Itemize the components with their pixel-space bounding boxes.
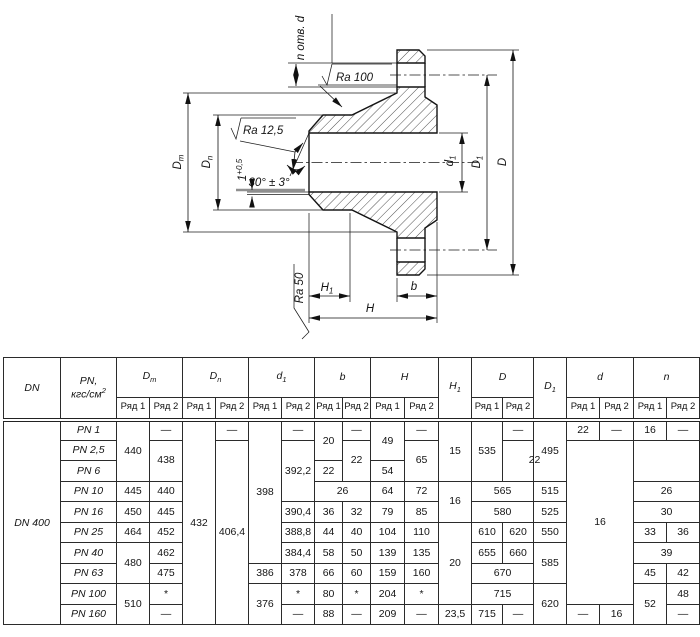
- spec-value-cell: 79: [371, 502, 405, 523]
- spec-value-cell: 159: [371, 563, 405, 584]
- spec-value-cell: 20: [439, 522, 472, 604]
- spec-value-cell: 49: [371, 420, 405, 461]
- spec-value-cell: 64: [371, 481, 405, 502]
- spec-value-cell: —: [282, 604, 315, 625]
- spec-value-cell: 48: [667, 584, 700, 605]
- pn-row-label: PN 1: [61, 420, 117, 441]
- spec-value-cell: 104: [371, 522, 405, 543]
- spec-value-cell: 452: [150, 522, 183, 543]
- page: n отв. d Ra 100 Ra 12,5 Ra 50 30° ± 3° 1…: [0, 0, 700, 637]
- pn-row-label: PN 10: [61, 481, 117, 502]
- spec-value-cell: 464: [117, 522, 150, 543]
- spec-value-cell: 620: [503, 522, 534, 543]
- column-header: PN,кгс/см2: [61, 358, 117, 420]
- spec-value-cell: 16: [634, 420, 667, 441]
- spec-value-cell: 450: [117, 502, 150, 523]
- spec-value-cell: 388,8: [282, 522, 315, 543]
- spec-value-cell: 26: [634, 481, 700, 502]
- spec-value-cell: 52: [634, 584, 667, 625]
- dm-dim-label: Dm: [172, 154, 186, 169]
- spec-value-cell: 392,2: [282, 440, 315, 502]
- spec-value-cell: 45: [634, 563, 667, 584]
- spec-value-cell: 585: [534, 543, 567, 584]
- spec-value-cell: 445: [117, 481, 150, 502]
- spec-value-cell: —: [667, 604, 700, 625]
- table-body: DN 400PN 1440—432—398—20—49—15535—49522—…: [4, 420, 700, 625]
- series-header: Ряд 2: [405, 398, 439, 420]
- series-header: Ряд 1: [634, 398, 667, 420]
- spec-value-cell: 40: [343, 522, 371, 543]
- dimension-lines: [188, 50, 513, 318]
- spec-value-cell: 480: [117, 543, 150, 584]
- column-header: d1: [249, 358, 315, 398]
- series-header: Ряд 2: [343, 398, 371, 420]
- d1-dim-label: d1: [444, 156, 458, 167]
- spec-value-cell: 139: [371, 543, 405, 564]
- spec-value-cell: 22: [343, 440, 371, 481]
- spec-value-cell: 60: [343, 563, 371, 584]
- series-header: Ряд 1: [371, 398, 405, 420]
- ra100-label: Ra 100: [336, 72, 374, 84]
- spec-value-cell: 440: [150, 481, 183, 502]
- dn-dim-label: Dn: [201, 155, 215, 168]
- spec-value-cell: 384,4: [282, 543, 315, 564]
- spec-value-cell: 376: [249, 584, 282, 625]
- spec-value-cell: 386: [249, 563, 282, 584]
- spec-value-cell: —: [503, 604, 534, 625]
- spec-value-cell: 550: [534, 522, 567, 543]
- column-header: Dm: [117, 358, 183, 398]
- spec-value-cell: 515: [534, 481, 567, 502]
- column-header: D: [472, 358, 534, 398]
- spec-value-cell: 23,5: [439, 604, 472, 625]
- b-dim-label: b: [411, 281, 418, 293]
- spec-value-cell: *: [405, 584, 439, 605]
- pn-row-label: PN 6: [61, 461, 117, 482]
- series-header: Ряд 1: [183, 398, 216, 420]
- spec-value-cell: 36: [315, 502, 343, 523]
- spec-value-cell: 54: [371, 461, 405, 482]
- flange-spec-table: DNPN,кгс/см2DmDnd1bHH1DD1dn Ряд 1Ряд 2Ря…: [3, 357, 700, 625]
- spec-value-cell: 22: [567, 420, 600, 441]
- pn-row-label: PN 160: [61, 604, 117, 625]
- spec-value-cell: —: [600, 420, 634, 441]
- series-header: Ряд 2: [150, 398, 183, 420]
- spec-value-cell: 110: [405, 522, 439, 543]
- pn-row-label: PN 2,5: [61, 440, 117, 461]
- column-header: H1: [439, 358, 472, 420]
- flange-spec-table-wrap: DNPN,кгс/см2DmDnd1bHH1DD1dn Ряд 1Ряд 2Ря…: [3, 357, 697, 625]
- D1-dim-label: D1: [471, 156, 485, 169]
- spec-value-cell: 33: [634, 522, 667, 543]
- spec-value-cell: —: [503, 420, 534, 441]
- spec-value-cell: 88: [315, 604, 343, 625]
- spec-value-cell: 72: [405, 481, 439, 502]
- spec-value-cell: 438: [150, 440, 183, 481]
- series-header: Ряд 1: [315, 398, 343, 420]
- n-holes-label: n отв. d: [295, 15, 307, 60]
- table-row: PN 160——88—209—23,5715——16—: [4, 604, 700, 625]
- spec-value-cell: —: [343, 604, 371, 625]
- spec-value-cell: 398: [249, 420, 282, 564]
- spec-value-cell: 378: [282, 563, 315, 584]
- spec-value-cell: 510: [117, 584, 150, 625]
- spec-value-cell: 565: [472, 481, 534, 502]
- spec-value-cell: 440: [117, 420, 150, 482]
- spec-value-cell: *: [343, 584, 371, 605]
- spec-value-cell: 660: [503, 543, 534, 564]
- series-header: Ряд 2: [282, 398, 315, 420]
- spec-value-cell: 80: [315, 584, 343, 605]
- dn-label: DN 400: [4, 420, 61, 625]
- spec-value-cell: 22: [315, 461, 343, 482]
- spec-value-cell: 390,4: [282, 502, 315, 523]
- spec-value-cell: 610: [472, 522, 503, 543]
- column-header: d: [567, 358, 634, 398]
- spec-value-cell: 406,4: [216, 440, 249, 625]
- spec-value-cell: 475: [150, 563, 183, 584]
- spec-value-cell: 30: [634, 502, 700, 523]
- column-header: D1: [534, 358, 567, 420]
- spec-value-cell: 715: [472, 584, 534, 605]
- spec-value-cell: 204: [371, 584, 405, 605]
- spec-value-cell: —: [567, 604, 600, 625]
- ra50-label: Ra 50: [294, 272, 306, 303]
- extension-lines: [183, 14, 519, 339]
- spec-value-cell: 20: [315, 420, 343, 461]
- spec-value-cell: 39: [634, 543, 700, 564]
- pn-row-label: PN 100: [61, 584, 117, 605]
- spec-value-cell: *: [150, 584, 183, 605]
- spec-value-cell: 16: [439, 481, 472, 522]
- spec-value-cell: 620: [534, 584, 567, 625]
- column-header: b: [315, 358, 371, 398]
- spec-value-cell: 66: [315, 563, 343, 584]
- table-header: DNPN,кгс/см2DmDnd1bHH1DD1dn Ряд 1Ряд 2Ря…: [4, 358, 700, 420]
- spec-value-cell: 160: [405, 563, 439, 584]
- spec-value-cell: 16: [567, 440, 634, 604]
- series-header: Ряд 1: [567, 398, 600, 420]
- spec-value-cell: 462: [150, 543, 183, 564]
- table-row: PN 2,5438406,4392,222652216: [4, 440, 700, 461]
- spec-value-cell: —: [282, 420, 315, 441]
- spec-value-cell: 65: [405, 440, 439, 481]
- spec-value-cell: 580: [472, 502, 534, 523]
- series-header: Ряд 2: [600, 398, 634, 420]
- bevel-angle-label: 30° ± 3°: [248, 177, 289, 189]
- series-header: Ряд 2: [503, 398, 534, 420]
- column-header: Dn: [183, 358, 249, 398]
- series-header: Ряд 1: [472, 398, 503, 420]
- spec-value-cell: —: [405, 420, 439, 441]
- spec-value-cell: 15: [439, 420, 472, 482]
- table-row: DN 400PN 1440—432—398—20—49—15535—49522—…: [4, 420, 700, 441]
- spec-value-cell: 36: [667, 522, 700, 543]
- spec-value-cell: 715: [472, 604, 503, 625]
- H1-dim-label: H1: [321, 282, 334, 296]
- pn-row-label: PN 40: [61, 543, 117, 564]
- spec-value-cell: —: [150, 420, 183, 441]
- spec-value-cell: —: [343, 420, 371, 441]
- spec-value-cell: 16: [600, 604, 634, 625]
- land-dim-label: 1+0,5: [235, 158, 249, 181]
- spec-value-cell: —: [405, 604, 439, 625]
- pn-row-label: PN 25: [61, 522, 117, 543]
- spec-value-cell: 32: [343, 502, 371, 523]
- spec-value-cell: *: [282, 584, 315, 605]
- column-header: DN: [4, 358, 61, 420]
- series-header: Ряд 2: [667, 398, 700, 420]
- spec-value-cell: 58: [315, 543, 343, 564]
- ra125-label: Ra 12,5: [243, 125, 284, 137]
- spec-value-cell: 209: [371, 604, 405, 625]
- pn-row-label: PN 16: [61, 502, 117, 523]
- spec-value-cell: —: [667, 420, 700, 441]
- series-header: Ряд 1: [117, 398, 150, 420]
- spec-value-cell: 44: [315, 522, 343, 543]
- spec-value-cell: 50: [343, 543, 371, 564]
- column-header: H: [371, 358, 439, 398]
- spec-value-cell: 535: [472, 420, 503, 482]
- spec-value-cell: 85: [405, 502, 439, 523]
- spec-value-cell: —: [150, 604, 183, 625]
- column-header: n: [634, 358, 700, 398]
- spec-value-cell: 655: [472, 543, 503, 564]
- D-dim-label: D: [497, 158, 509, 166]
- series-header: Ряд 2: [216, 398, 249, 420]
- spec-value-cell: 135: [405, 543, 439, 564]
- series-header: Ряд 1: [249, 398, 282, 420]
- spec-value-cell: —: [216, 420, 249, 441]
- spec-value-cell: 525: [534, 502, 567, 523]
- pn-row-label: PN 63: [61, 563, 117, 584]
- H-dim-label: H: [366, 303, 375, 315]
- spec-value-cell: 670: [472, 563, 534, 584]
- spec-value-cell: 432: [183, 420, 216, 625]
- spec-value-cell: 445: [150, 502, 183, 523]
- spec-value-cell: 42: [667, 563, 700, 584]
- flange-technical-drawing: n отв. d Ra 100 Ra 12,5 Ra 50 30° ± 3° 1…: [0, 0, 700, 352]
- spec-value-cell: 26: [315, 481, 371, 502]
